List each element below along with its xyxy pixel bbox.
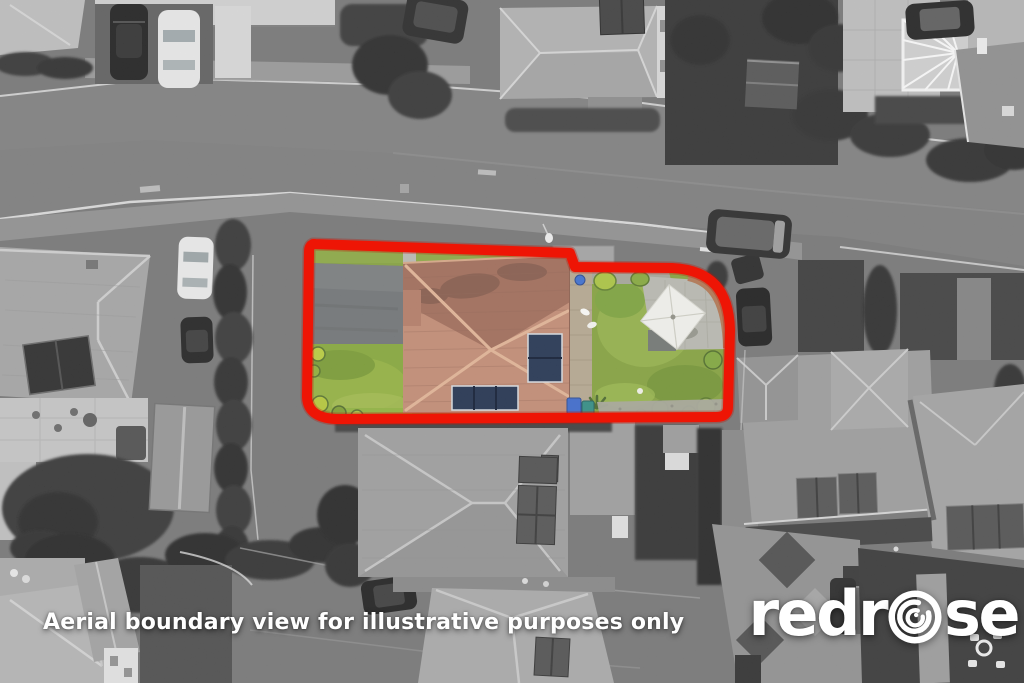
brand-logo-text-left: redr <box>748 583 886 645</box>
rose-swirl-icon <box>888 590 942 644</box>
brand-logo: redr se <box>748 583 1018 645</box>
aerial-photo-stage: Aerial boundary view for illustrative pu… <box>0 0 1024 683</box>
brand-logo-text-right: se <box>944 583 1018 645</box>
disclaimer-text: Aerial boundary view for illustrative pu… <box>43 610 684 635</box>
